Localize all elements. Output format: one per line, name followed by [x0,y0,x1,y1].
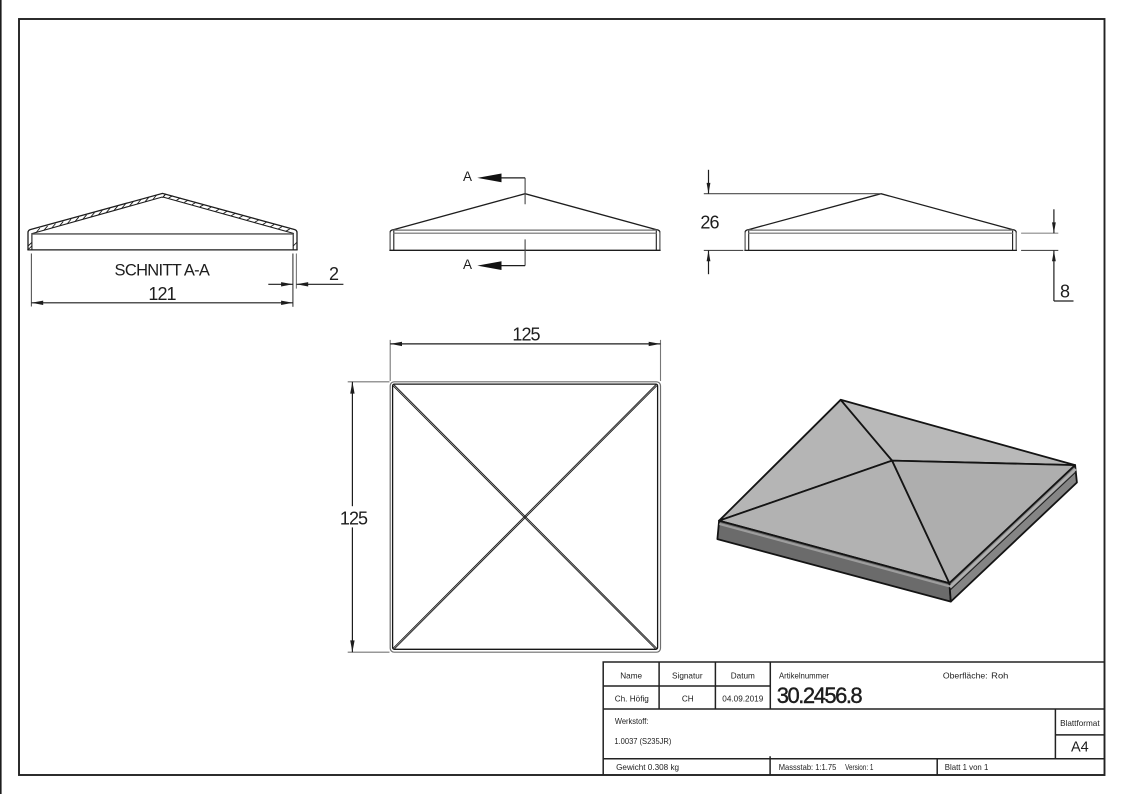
svg-text:Massstab: 1:1.75: Massstab: 1:1.75 [779,763,837,772]
svg-text:Blatt 1 von 1: Blatt 1 von 1 [945,763,989,772]
svg-text:125: 125 [340,508,368,528]
svg-text:A: A [463,169,472,184]
svg-text:30.2456.8: 30.2456.8 [777,683,863,708]
svg-text:Version: 1: Version: 1 [845,763,874,772]
svg-text:121: 121 [148,284,176,304]
svg-text:Signatur: Signatur [672,672,703,681]
svg-text:A4: A4 [1071,740,1089,756]
svg-text:CH: CH [682,695,694,704]
svg-text:2: 2 [329,264,339,284]
svg-text:Oberfläche:: Oberfläche: [943,672,988,681]
svg-text:Roh: Roh [991,672,1009,681]
svg-text:1.0037 (S235JR): 1.0037 (S235JR) [614,737,671,746]
svg-text:SCHNITT A-A: SCHNITT A-A [115,262,210,280]
svg-text:Name: Name [620,672,642,681]
svg-text:26: 26 [700,213,719,233]
svg-text:Werkstoff:: Werkstoff: [615,717,649,726]
svg-text:Gewicht 0.308 kg: Gewicht 0.308 kg [616,763,679,772]
svg-text:8: 8 [1060,281,1070,301]
svg-text:Ch. Höfig: Ch. Höfig [615,695,650,704]
svg-text:A: A [463,257,472,272]
svg-text:Artikelnummer: Artikelnummer [779,672,829,681]
svg-text:125: 125 [512,325,540,345]
svg-text:Datum: Datum [731,672,755,681]
svg-text:04.09.2019: 04.09.2019 [722,695,763,704]
svg-text:Blattformat: Blattformat [1060,719,1100,728]
